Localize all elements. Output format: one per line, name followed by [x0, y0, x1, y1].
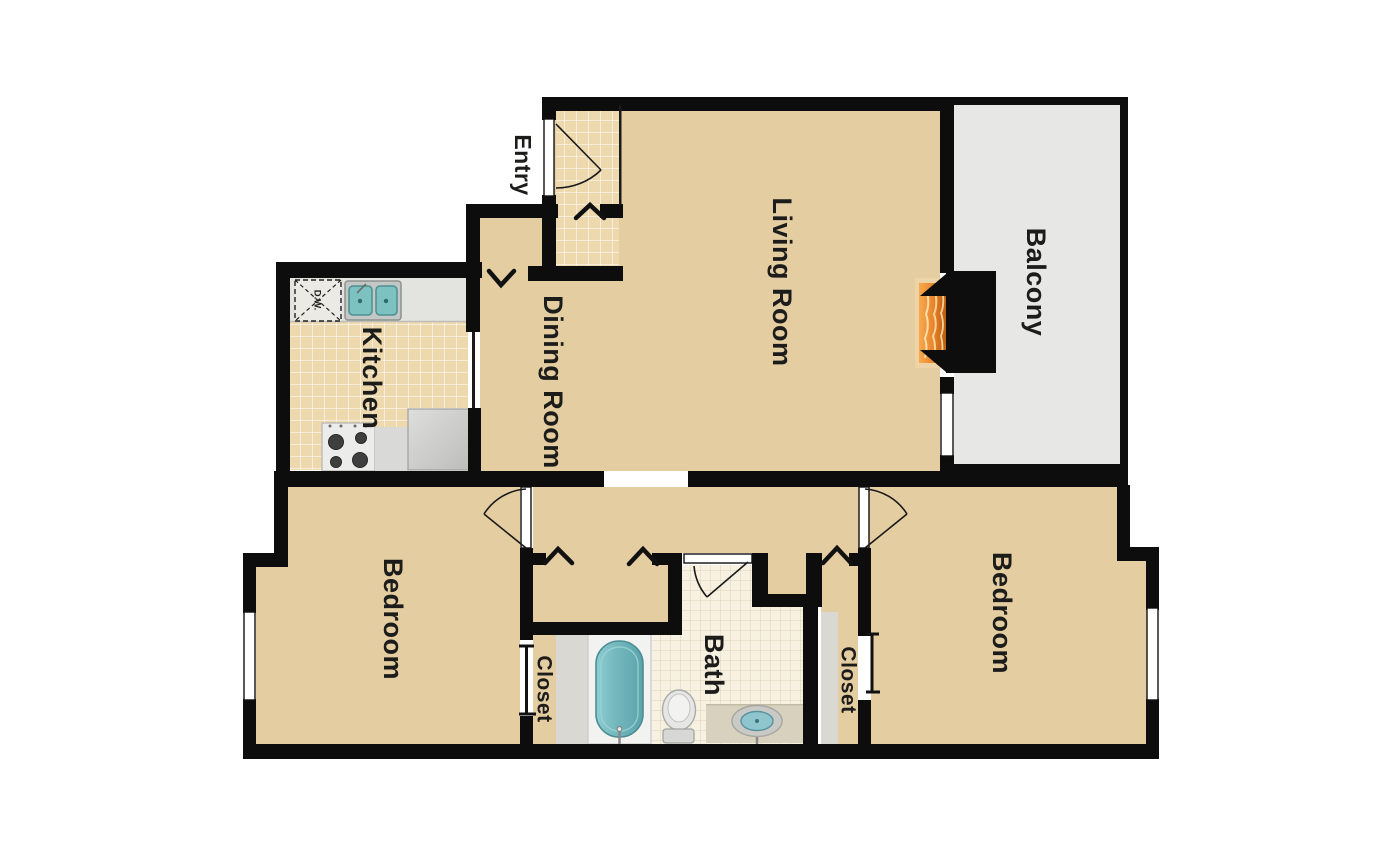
kitchen-sink-icon — [345, 281, 401, 320]
wall — [803, 594, 818, 747]
balcony-wall — [948, 97, 1128, 105]
label-closet-right: Closet — [837, 646, 860, 713]
vanity-sink-icon — [706, 704, 803, 749]
entry-door-threshold — [544, 119, 554, 196]
label-balcony: Balcony — [1021, 228, 1051, 337]
label-dishwasher: D.W. — [312, 290, 323, 311]
wall — [526, 622, 678, 635]
floor-plan: Entry Kitchen Dining Room Living Room Ba… — [0, 0, 1400, 852]
bedroom-right-door-threshold — [859, 487, 869, 548]
wall — [274, 471, 604, 487]
floor-strip-left-closet — [556, 635, 588, 744]
wall — [243, 744, 1159, 759]
refrigerator-icon — [408, 409, 469, 470]
floor-bedroom-right-ext — [1117, 561, 1147, 745]
wall — [858, 548, 871, 636]
balcony-slider-window — [941, 393, 953, 456]
label-kitchen: Kitchen — [357, 327, 387, 430]
label-living-room: Living Room — [767, 198, 797, 367]
wall — [752, 553, 768, 607]
floor-hallway — [533, 487, 871, 553]
stove-icon — [322, 423, 375, 471]
wall — [276, 262, 482, 278]
toilet-icon — [663, 690, 696, 743]
wall — [940, 455, 954, 487]
label-bedroom-left: Bedroom — [378, 558, 408, 680]
wall — [1146, 699, 1159, 747]
label-entry: Entry — [510, 134, 536, 195]
wall — [520, 548, 533, 640]
bedroom-left-door-threshold — [521, 487, 531, 548]
entry-tile-edge — [619, 105, 622, 205]
wall — [243, 699, 256, 749]
balcony-wall — [946, 464, 1122, 472]
balcony-wall — [1120, 97, 1128, 472]
wall — [542, 195, 556, 280]
bathtub-icon — [588, 632, 651, 744]
wall — [940, 97, 954, 273]
label-bedroom-right: Bedroom — [987, 552, 1017, 674]
kitchen-pass-through-line — [472, 332, 475, 408]
wall — [520, 716, 533, 748]
floor-bedroom-left-ext — [256, 567, 290, 745]
wall — [466, 204, 480, 332]
wall — [542, 97, 954, 111]
label-dining-room: Dining Room — [538, 295, 568, 468]
wall — [243, 553, 256, 613]
floor-hall-alcove-left — [533, 553, 668, 622]
wall — [1146, 553, 1159, 610]
window-left-bedroom — [244, 612, 255, 700]
wall — [542, 97, 556, 120]
floor-plan-canvas: Entry Kitchen Dining Room Living Room Ba… — [0, 0, 1400, 852]
label-closet-left: Closet — [533, 655, 556, 722]
floor-entry-tile — [556, 105, 619, 267]
wall — [940, 377, 954, 394]
wall — [688, 471, 1128, 487]
wall — [276, 262, 290, 472]
wall — [468, 408, 481, 483]
bath-door-threshold — [684, 554, 752, 563]
floor-hall-alcove-right — [768, 553, 806, 594]
wall — [1117, 485, 1130, 557]
kitchen-counter-bottom — [375, 427, 408, 471]
label-bath: Bath — [699, 634, 729, 696]
floor-strip-right-closet — [821, 612, 838, 744]
fireplace-icon — [915, 271, 996, 373]
wall — [668, 553, 682, 635]
window-right-bedroom — [1147, 608, 1158, 700]
wall — [274, 471, 288, 565]
